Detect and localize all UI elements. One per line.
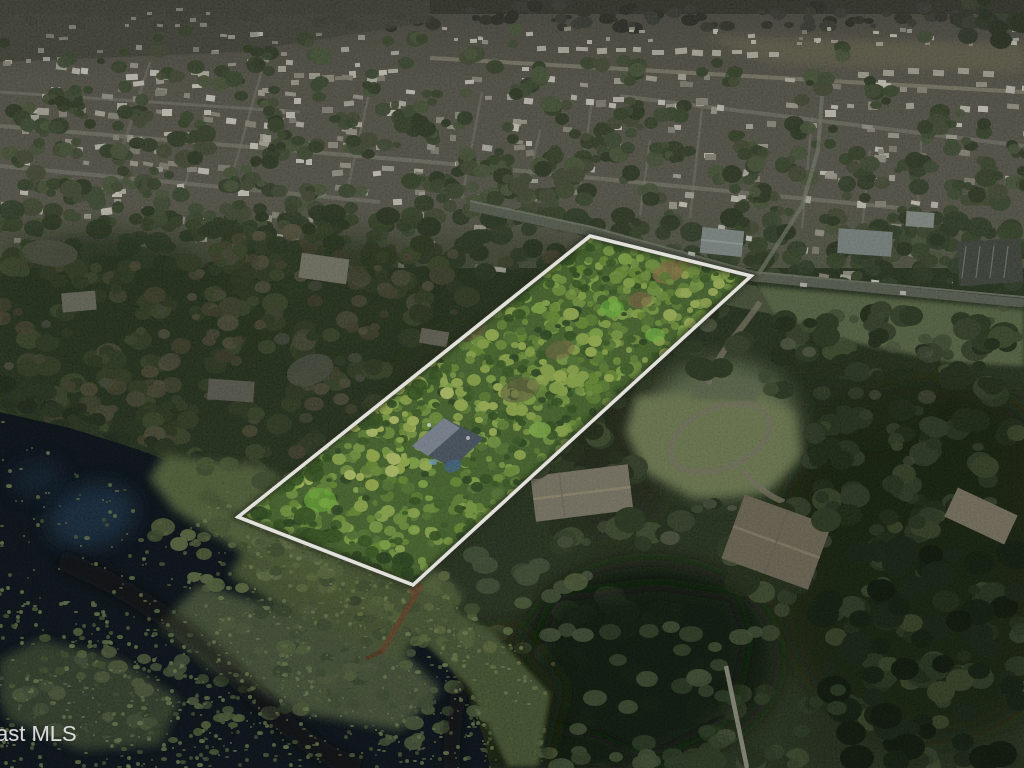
svg-text:ast MLS: ast MLS: [0, 721, 77, 746]
